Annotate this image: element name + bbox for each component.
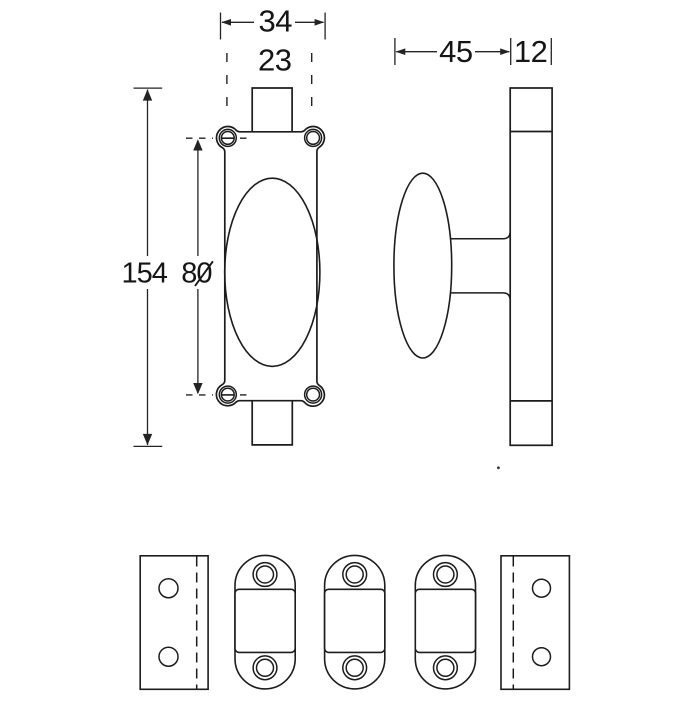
svg-text:23: 23 bbox=[258, 43, 291, 78]
svg-text:34: 34 bbox=[259, 4, 293, 39]
svg-text:45: 45 bbox=[439, 34, 472, 69]
svg-text:12: 12 bbox=[514, 34, 547, 69]
svg-text:154: 154 bbox=[122, 258, 168, 290]
